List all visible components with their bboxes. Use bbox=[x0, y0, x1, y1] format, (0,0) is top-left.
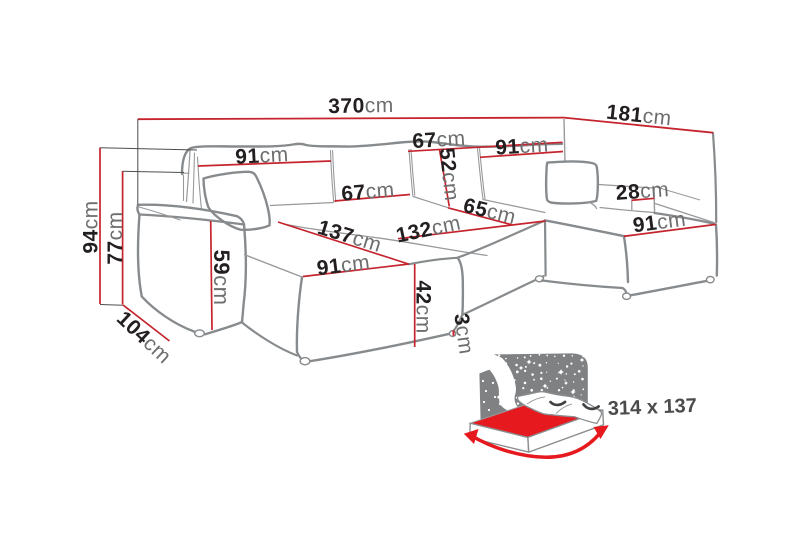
svg-text:370cm: 370cm bbox=[328, 93, 394, 117]
svg-text:59cm: 59cm bbox=[209, 250, 234, 306]
svg-text:42cm: 42cm bbox=[412, 280, 435, 333]
svg-text:28cm: 28cm bbox=[615, 178, 670, 205]
svg-text:94cm: 94cm bbox=[79, 200, 102, 253]
svg-text:77cm: 77cm bbox=[104, 211, 127, 264]
svg-text:67cm: 67cm bbox=[340, 178, 395, 206]
svg-text:91cm: 91cm bbox=[495, 133, 550, 159]
svg-text:314 x 137: 314 x 137 bbox=[607, 395, 697, 420]
svg-text:91cm: 91cm bbox=[235, 143, 289, 169]
